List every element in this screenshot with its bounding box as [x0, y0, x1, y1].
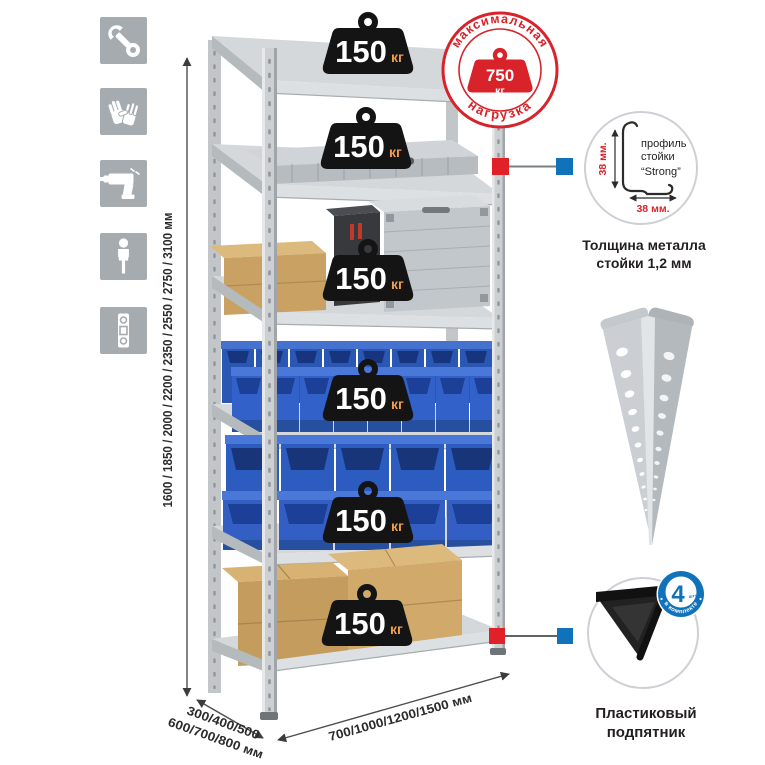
profile-horizontal-dim: 38 мм.	[636, 203, 669, 215]
shelving-rack-illustration: 150 кг 150 кг 150 кг 150 кг 150 кг	[0, 0, 765, 765]
load-badge-unit: кг	[390, 621, 403, 637]
depth-options-label: 300/400/500 600/700/800 мм	[166, 699, 271, 762]
profile-label-2: стойки	[641, 151, 675, 163]
stamp-value: 750	[486, 66, 514, 85]
max-load-stamp: максимальная нагрузка 750 кг	[443, 12, 557, 127]
foot-caption-1: Пластиковый	[595, 705, 696, 722]
load-badge-1: 150 кг	[323, 15, 413, 74]
profile-label-1: профиль	[641, 138, 687, 150]
marker-red-top	[492, 158, 509, 175]
profile-caption-1: Толщина металла	[582, 237, 706, 253]
kit-badge: 4 штуки в комплекте	[657, 570, 706, 619]
marker-red-bottom	[489, 628, 505, 644]
load-badge-unit: кг	[389, 144, 402, 160]
stamp-unit: кг	[495, 85, 505, 97]
load-badge-unit: кг	[391, 518, 404, 534]
product-diagram: 150 кг 150 кг 150 кг 150 кг 150 кг	[0, 0, 765, 765]
feature-icons	[100, 17, 148, 354]
load-badge-unit: кг	[391, 276, 404, 292]
foot-detail: 4 штуки в комплекте Пластиковый подпятни…	[588, 570, 706, 742]
profile-label-3: “Strong”	[641, 166, 681, 178]
person-icon-tile	[100, 233, 147, 280]
level-icon-tile	[100, 307, 147, 354]
load-badge-value: 150	[334, 606, 386, 641]
width-options-label: 700/1000/1200/1500 мм	[327, 691, 473, 744]
level-icon	[118, 314, 129, 348]
load-badge-unit: кг	[391, 396, 404, 412]
gloves-icon-tile	[100, 88, 147, 135]
load-badge-value: 150	[335, 261, 387, 296]
load-badge-value: 150	[333, 129, 385, 164]
height-options-label: 1600 / 1850 / 2000 / 2200 / 2350 / 2550 …	[161, 213, 175, 508]
profile-vertical-dim: 38 мм.	[597, 142, 609, 175]
drill-icon-tile	[100, 160, 148, 207]
profile-caption-2: стойки 1,2 мм	[596, 255, 691, 271]
width-dimension-line	[278, 674, 509, 740]
foot-caption-2: подпятник	[607, 724, 686, 741]
angle-post-photo	[600, 308, 693, 545]
profile-detail: 38 мм. 38 мм. профиль стойки “Strong” То…	[582, 112, 706, 271]
load-badge-unit: кг	[391, 49, 404, 65]
kit-badge-value: 4	[671, 581, 685, 608]
load-badge-2: 150 кг	[321, 110, 411, 169]
load-badge-value: 150	[335, 34, 387, 69]
marker-blue-bottom	[557, 628, 573, 644]
wrench-icon-tile	[100, 17, 147, 64]
load-badge-value: 150	[335, 503, 387, 538]
marker-blue-top	[556, 158, 573, 175]
load-badge-value: 150	[335, 381, 387, 416]
